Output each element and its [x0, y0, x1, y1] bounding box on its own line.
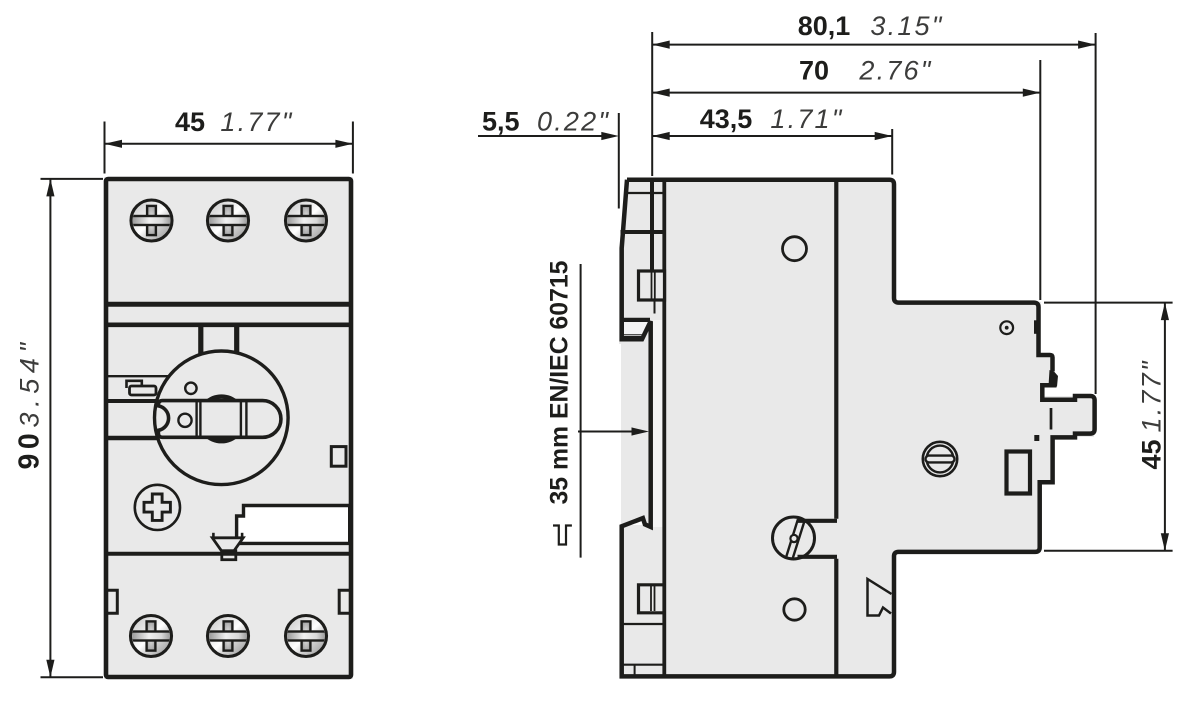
svg-text:70: 70	[799, 56, 829, 86]
svg-text:35 mm EN/IEC 60715: 35 mm EN/IEC 60715	[547, 260, 574, 504]
svg-text:90: 90	[14, 429, 46, 470]
svg-text:80,1: 80,1	[798, 11, 851, 41]
svg-text:3.15": 3.15"	[870, 11, 943, 41]
svg-text:3.54": 3.54"	[15, 337, 45, 427]
svg-text:1.71": 1.71"	[770, 104, 843, 134]
svg-text:1.77": 1.77"	[220, 107, 293, 137]
svg-text:45: 45	[1137, 439, 1167, 469]
svg-text:5,5: 5,5	[482, 107, 520, 137]
svg-text:43,5: 43,5	[700, 104, 753, 134]
svg-text:45: 45	[175, 107, 205, 137]
svg-text:2.76": 2.76"	[858, 56, 932, 86]
svg-text:1.77": 1.77"	[1137, 359, 1167, 432]
svg-text:0.22": 0.22"	[537, 107, 610, 137]
